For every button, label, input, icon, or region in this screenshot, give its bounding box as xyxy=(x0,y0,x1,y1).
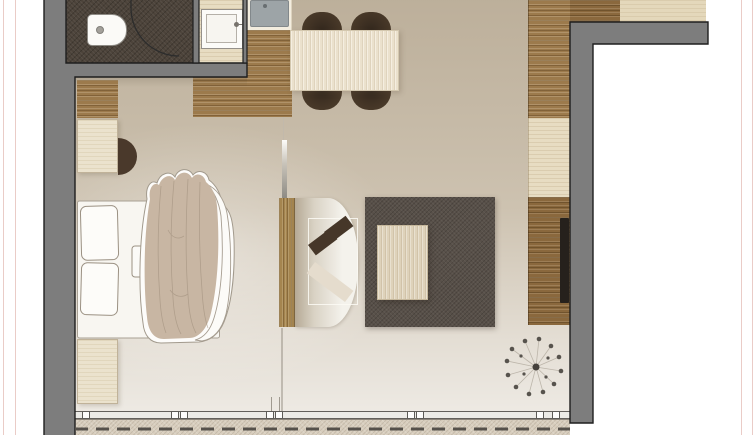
window-vent-glyph xyxy=(82,411,90,419)
window-mullion xyxy=(271,397,272,411)
room-divider-lower-line xyxy=(281,328,283,412)
room-divider xyxy=(282,140,287,198)
sofa-back-panel xyxy=(279,198,295,327)
wardrobe-right xyxy=(528,0,570,118)
dining-table xyxy=(290,30,399,91)
coffee-table xyxy=(377,225,428,300)
window-vent-glyph xyxy=(266,411,274,419)
washbasin-faucet-line xyxy=(239,24,245,25)
window-vent-glyph xyxy=(275,411,283,419)
balcony-floor xyxy=(75,419,570,435)
hall-cabinet-light xyxy=(620,0,706,22)
washbasin-inner xyxy=(206,14,237,43)
window-vent-glyph xyxy=(171,411,179,419)
toilet xyxy=(87,14,127,46)
floor-plan-page xyxy=(0,0,754,435)
wardrobe-cabinet xyxy=(77,80,118,118)
faucet-dot xyxy=(263,4,267,8)
window-mullion xyxy=(279,397,280,411)
bathroom-floor xyxy=(66,0,193,64)
page-guide-line xyxy=(752,0,753,435)
floor-seam-line xyxy=(283,117,284,141)
sofa-seat-outline xyxy=(308,218,358,305)
window-vent-glyph xyxy=(536,411,544,419)
toilet-flush-dot xyxy=(96,26,104,34)
desk xyxy=(77,119,118,173)
page-guide-line xyxy=(741,0,742,435)
wall-right xyxy=(570,22,708,423)
wardrobe-right-light-section xyxy=(528,118,570,197)
page-guide-line xyxy=(3,0,4,435)
window-front xyxy=(75,411,570,419)
page-guide-line xyxy=(15,0,16,435)
window-vent-glyph xyxy=(416,411,424,419)
window-vent-glyph xyxy=(407,411,415,419)
bed-foot-dresser xyxy=(77,339,118,404)
window-vent-glyph xyxy=(552,411,560,419)
kitchen-sink xyxy=(250,0,289,27)
hall-cabinet-dark xyxy=(570,0,620,22)
tv xyxy=(560,218,569,303)
window-vent-glyph xyxy=(180,411,188,419)
